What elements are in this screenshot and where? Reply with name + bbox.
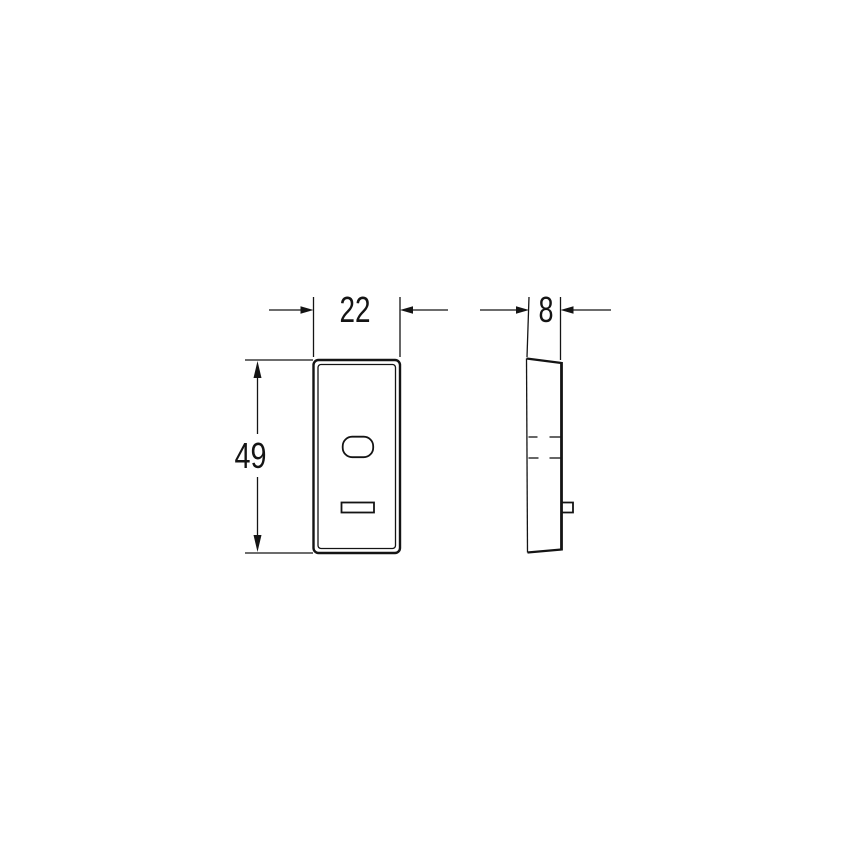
width-arrow-right-icon: [400, 306, 413, 314]
side-view-body: [527, 359, 562, 553]
height-arrow-up-icon: [254, 361, 262, 378]
depth-arrow-right-icon: [561, 306, 574, 314]
height-arrow-down-icon: [254, 535, 262, 552]
clip-slot: [342, 503, 375, 513]
drawing-canvas: 22 49 8: [0, 0, 850, 850]
side-view: [527, 359, 574, 553]
sensor-window-oval: [343, 437, 374, 458]
depth-extension-line-left: [527, 297, 529, 357]
height-dimension: 49: [235, 360, 314, 553]
height-value: 49: [235, 435, 267, 476]
front-view: [314, 360, 401, 553]
width-dimension: 22: [269, 289, 448, 357]
technical-drawing: 22 49 8: [0, 0, 850, 850]
width-value: 22: [340, 289, 371, 330]
depth-dimension: 8: [480, 289, 611, 360]
clip-tab: [563, 503, 574, 513]
width-arrow-left-icon: [301, 306, 314, 314]
depth-arrow-left-icon: [516, 306, 529, 314]
depth-value: 8: [539, 289, 554, 330]
